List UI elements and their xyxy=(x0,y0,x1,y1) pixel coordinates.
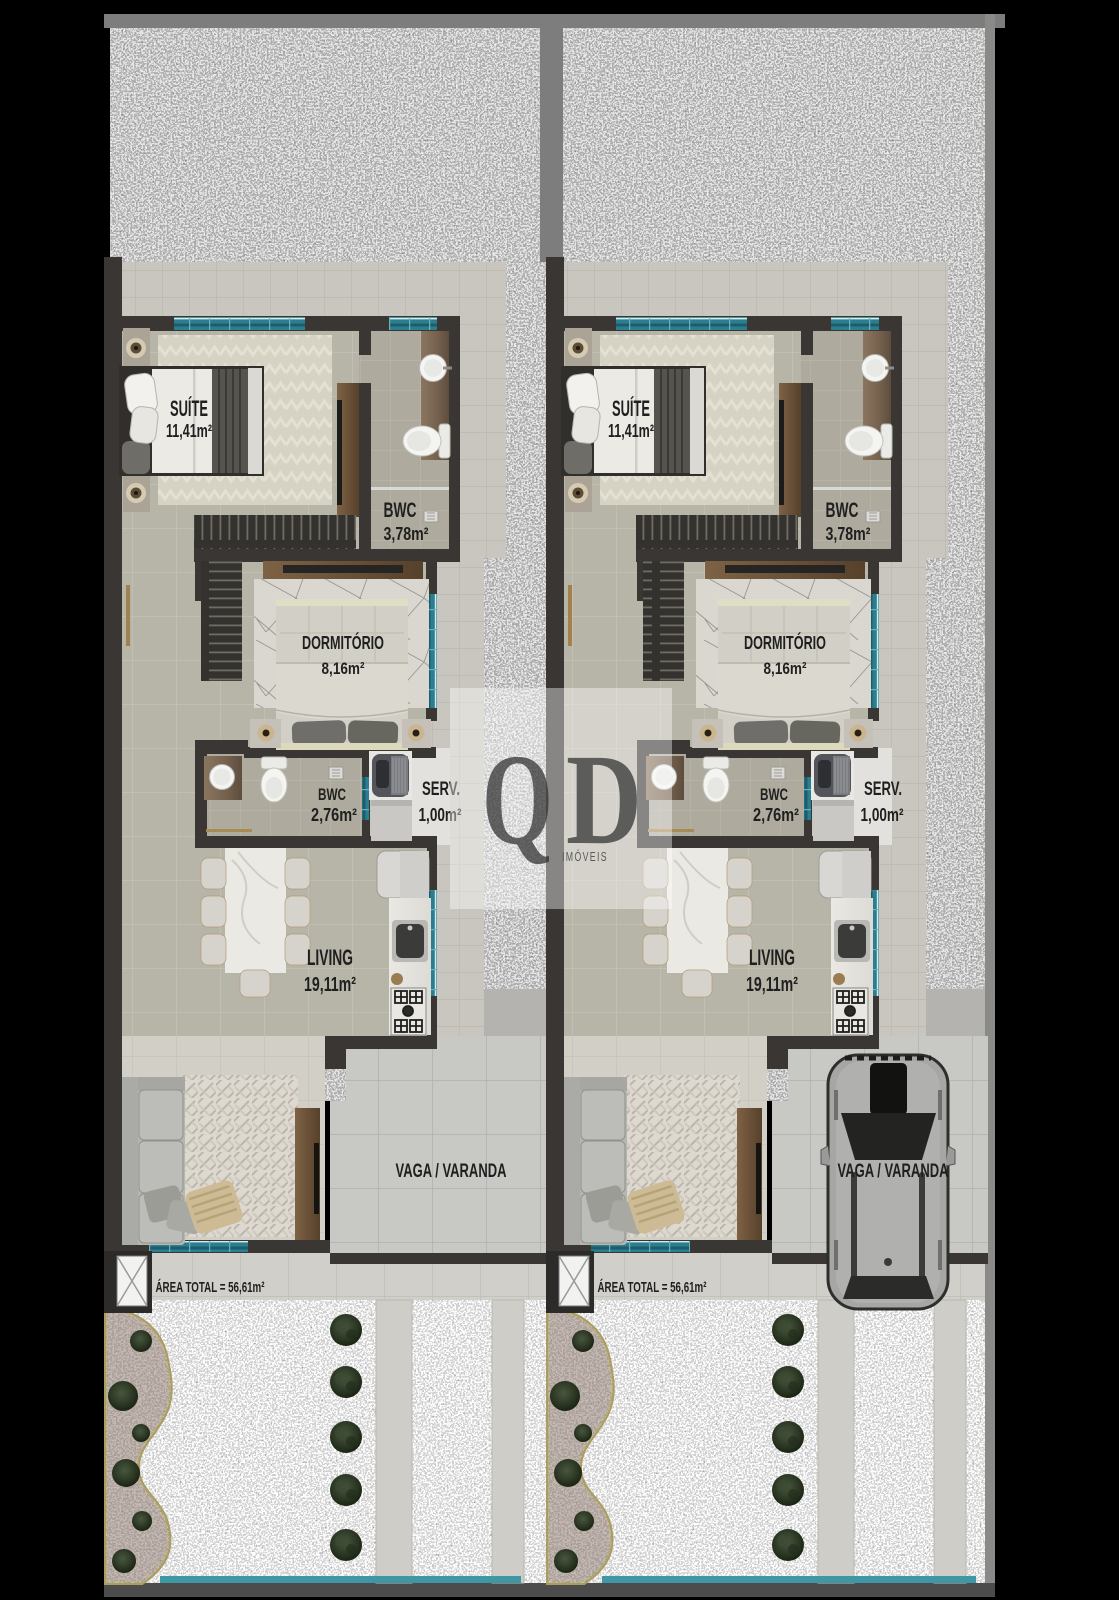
svg-text:LIVING: LIVING xyxy=(749,945,795,970)
svg-text:2,76m²: 2,76m² xyxy=(753,805,799,825)
svg-text:ÁREA TOTAL = 56,61m²: ÁREA TOTAL = 56,61m² xyxy=(156,1279,265,1296)
svg-text:11,41m²: 11,41m² xyxy=(608,421,654,441)
svg-text:ÁREA TOTAL = 56,61m²: ÁREA TOTAL = 56,61m² xyxy=(598,1279,707,1296)
svg-text:VAGA / VARANDA: VAGA / VARANDA xyxy=(396,1161,507,1182)
svg-text:BWC: BWC xyxy=(384,499,417,522)
svg-text:3,78m²: 3,78m² xyxy=(826,524,871,544)
svg-text:DORMITÓRIO: DORMITÓRIO xyxy=(744,632,826,653)
svg-text:VAGA / VARANDA: VAGA / VARANDA xyxy=(838,1161,949,1182)
svg-text:19,11m²: 19,11m² xyxy=(746,974,798,996)
svg-text:SUÍTE: SUÍTE xyxy=(612,396,650,421)
svg-text:Q: Q xyxy=(482,728,553,872)
svg-text:8,16m²: 8,16m² xyxy=(764,659,807,678)
svg-text:SERV.: SERV. xyxy=(864,779,902,800)
svg-text:SUÍTE: SUÍTE xyxy=(170,396,208,421)
svg-text:BWC: BWC xyxy=(760,785,788,804)
svg-text:1,00m²: 1,00m² xyxy=(861,805,904,825)
svg-text:BWC: BWC xyxy=(318,785,346,804)
svg-text:DORMITÓRIO: DORMITÓRIO xyxy=(302,632,384,653)
svg-text:2,76m²: 2,76m² xyxy=(311,805,357,825)
svg-text:BWC: BWC xyxy=(826,499,859,522)
svg-text:8,16m²: 8,16m² xyxy=(322,659,365,678)
svg-text:3,78m²: 3,78m² xyxy=(384,524,429,544)
svg-text:11,41m²: 11,41m² xyxy=(166,421,212,441)
svg-text:IMÓVEIS: IMÓVEIS xyxy=(562,849,608,864)
svg-text:LIVING: LIVING xyxy=(307,945,353,970)
svg-text:19,11m²: 19,11m² xyxy=(304,974,356,996)
